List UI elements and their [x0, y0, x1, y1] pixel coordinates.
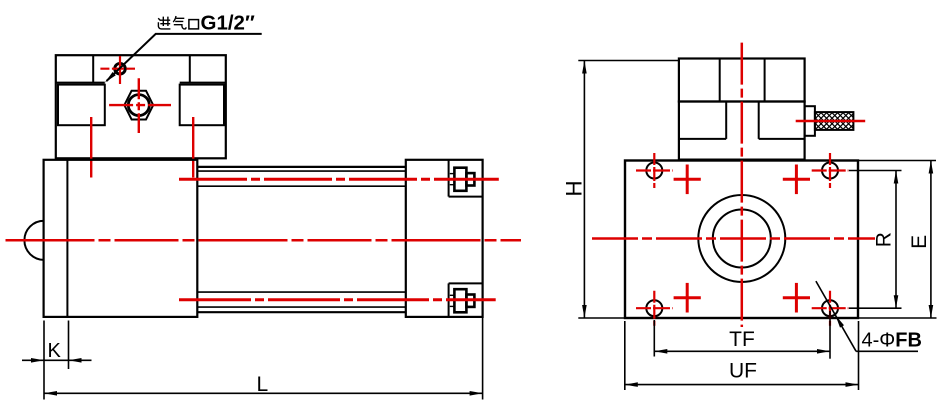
svg-text:H: H [561, 180, 586, 196]
svg-text:TF: TF [729, 328, 755, 351]
svg-text:R: R [873, 232, 896, 247]
svg-text:K: K [48, 340, 62, 362]
svg-text:4-ΦFB: 4-ΦFB [862, 329, 922, 351]
svg-text:E: E [908, 235, 931, 249]
svg-text:UF: UF [729, 360, 757, 383]
svg-text:L: L [257, 373, 269, 396]
svg-text:G1/2″: G1/2″ [201, 11, 255, 34]
